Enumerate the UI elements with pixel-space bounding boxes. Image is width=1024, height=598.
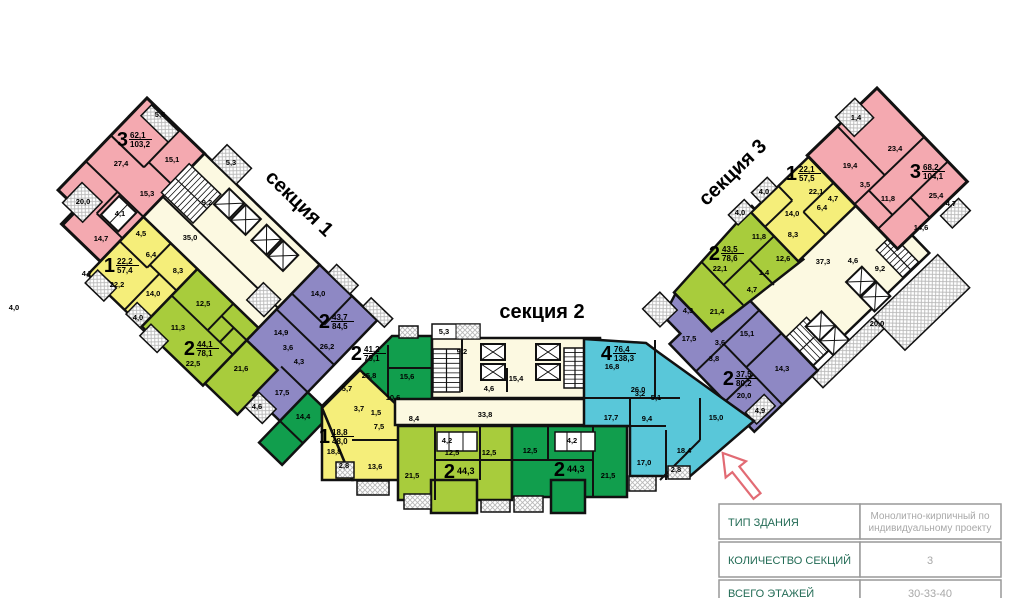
svg-text:10,6: 10,6 bbox=[386, 393, 401, 402]
svg-text:14,9: 14,9 bbox=[274, 328, 289, 337]
svg-text:1: 1 bbox=[786, 163, 797, 185]
svg-text:44,3: 44,3 bbox=[457, 466, 475, 476]
svg-text:4,0: 4,0 bbox=[759, 187, 769, 196]
svg-text:1: 1 bbox=[319, 426, 330, 448]
svg-text:3,8: 3,8 bbox=[709, 354, 719, 363]
svg-text:20,0: 20,0 bbox=[870, 319, 885, 328]
svg-text:22,5: 22,5 bbox=[186, 359, 201, 368]
svg-text:3,6: 3,6 bbox=[283, 343, 293, 352]
svg-text:76,4: 76,4 bbox=[614, 345, 630, 354]
svg-text:9,2: 9,2 bbox=[875, 264, 885, 273]
svg-text:4,7: 4,7 bbox=[946, 199, 956, 208]
svg-text:48,0: 48,0 bbox=[332, 437, 348, 446]
svg-text:3,2: 3,2 bbox=[635, 389, 645, 398]
svg-text:5,7: 5,7 bbox=[342, 384, 352, 393]
svg-text:2: 2 bbox=[444, 461, 455, 483]
svg-text:Монолитно-кирпичный по: Монолитно-кирпичный по bbox=[870, 511, 990, 522]
svg-text:5,1: 5,1 bbox=[651, 393, 661, 402]
svg-text:84,5: 84,5 bbox=[332, 322, 348, 331]
svg-text:37,5: 37,5 bbox=[736, 370, 752, 379]
svg-text:14,0: 14,0 bbox=[146, 289, 161, 298]
svg-text:103,2: 103,2 bbox=[130, 140, 151, 149]
svg-text:4,1: 4,1 bbox=[115, 209, 125, 218]
svg-text:1: 1 bbox=[104, 255, 115, 277]
svg-text:20,0: 20,0 bbox=[76, 197, 91, 206]
svg-text:44,1: 44,1 bbox=[197, 340, 213, 349]
svg-text:33,8: 33,8 bbox=[478, 410, 493, 419]
svg-text:17,5: 17,5 bbox=[682, 334, 697, 343]
svg-text:9,2: 9,2 bbox=[457, 347, 467, 356]
svg-text:15,4: 15,4 bbox=[509, 374, 524, 383]
svg-text:20,0: 20,0 bbox=[737, 391, 752, 400]
svg-text:1,5: 1,5 bbox=[371, 408, 381, 417]
svg-text:3,6: 3,6 bbox=[715, 338, 725, 347]
svg-text:15,1: 15,1 bbox=[165, 155, 180, 164]
svg-text:3,5: 3,5 bbox=[860, 180, 870, 189]
svg-text:7,5: 7,5 bbox=[374, 422, 384, 431]
svg-text:27,4: 27,4 bbox=[114, 159, 129, 168]
svg-text:37,3: 37,3 bbox=[816, 257, 831, 266]
svg-text:44,3: 44,3 bbox=[567, 464, 585, 474]
svg-text:22,1: 22,1 bbox=[809, 187, 824, 196]
svg-text:25,8: 25,8 bbox=[362, 371, 377, 380]
svg-text:104,1: 104,1 bbox=[923, 172, 944, 181]
svg-text:23,4: 23,4 bbox=[888, 144, 903, 153]
svg-text:18,8: 18,8 bbox=[332, 428, 348, 437]
svg-text:14,6: 14,6 bbox=[914, 223, 929, 232]
svg-text:21,4: 21,4 bbox=[710, 307, 725, 316]
svg-text:5,3: 5,3 bbox=[226, 158, 236, 167]
svg-text:2: 2 bbox=[709, 243, 720, 265]
svg-text:9,2: 9,2 bbox=[202, 198, 212, 207]
svg-text:22,1: 22,1 bbox=[713, 264, 728, 273]
svg-text:индивидуальному проекту: индивидуальному проекту bbox=[869, 523, 992, 534]
svg-text:22,2: 22,2 bbox=[110, 280, 125, 289]
svg-text:4,6: 4,6 bbox=[252, 402, 262, 411]
svg-text:4,3: 4,3 bbox=[294, 357, 304, 366]
svg-text:6,4: 6,4 bbox=[817, 203, 828, 212]
svg-text:68,2: 68,2 bbox=[923, 163, 939, 172]
svg-text:ТИП ЗДАНИЯ: ТИП ЗДАНИЯ bbox=[728, 517, 799, 529]
svg-text:1,4: 1,4 bbox=[759, 268, 770, 277]
svg-text:3: 3 bbox=[927, 555, 933, 567]
svg-text:4,0: 4,0 bbox=[9, 303, 19, 312]
svg-text:4,9: 4,9 bbox=[755, 406, 765, 415]
svg-text:14,7: 14,7 bbox=[94, 234, 109, 243]
svg-text:21,6: 21,6 bbox=[234, 364, 249, 373]
svg-text:секция 2: секция 2 bbox=[499, 301, 584, 323]
svg-text:17,5: 17,5 bbox=[275, 388, 290, 397]
svg-text:14,0: 14,0 bbox=[785, 209, 800, 218]
svg-text:41,2: 41,2 bbox=[364, 345, 380, 354]
svg-text:15,3: 15,3 bbox=[140, 189, 155, 198]
svg-text:18,8: 18,8 bbox=[327, 447, 342, 456]
svg-text:3: 3 bbox=[117, 129, 128, 151]
svg-text:3,7: 3,7 bbox=[354, 404, 364, 413]
svg-text:57,4: 57,4 bbox=[117, 266, 133, 275]
svg-text:2: 2 bbox=[319, 311, 330, 333]
svg-text:4,2: 4,2 bbox=[567, 436, 577, 445]
svg-text:12,5: 12,5 bbox=[482, 448, 497, 457]
svg-text:30-33-40: 30-33-40 bbox=[908, 588, 952, 598]
svg-text:19,4: 19,4 bbox=[843, 161, 858, 170]
svg-text:11,8: 11,8 bbox=[881, 194, 895, 203]
svg-text:4,7: 4,7 bbox=[747, 285, 757, 294]
svg-text:4,0: 4,0 bbox=[133, 313, 143, 322]
svg-text:8,3: 8,3 bbox=[788, 230, 798, 239]
svg-text:4,5: 4,5 bbox=[136, 229, 146, 238]
svg-text:22,2: 22,2 bbox=[117, 257, 133, 266]
svg-text:КОЛИЧЕСТВО СЕКЦИЙ: КОЛИЧЕСТВО СЕКЦИЙ bbox=[728, 554, 851, 567]
svg-text:4,6: 4,6 bbox=[848, 256, 858, 265]
svg-text:2: 2 bbox=[723, 368, 734, 390]
svg-text:22,1: 22,1 bbox=[799, 165, 815, 174]
svg-text:15,0: 15,0 bbox=[709, 413, 724, 422]
svg-text:2,8: 2,8 bbox=[671, 465, 681, 474]
svg-text:4,7: 4,7 bbox=[82, 269, 92, 278]
svg-text:15,6: 15,6 bbox=[400, 372, 415, 381]
svg-text:16,8: 16,8 bbox=[605, 362, 620, 371]
svg-text:80,2: 80,2 bbox=[736, 379, 752, 388]
svg-text:2: 2 bbox=[351, 343, 362, 365]
svg-text:4,7: 4,7 bbox=[828, 194, 838, 203]
svg-text:12,5: 12,5 bbox=[196, 299, 211, 308]
svg-text:17,0: 17,0 bbox=[637, 458, 652, 467]
svg-text:8,3: 8,3 bbox=[173, 266, 183, 275]
svg-text:ВСЕГО ЭТАЖЕЙ: ВСЕГО ЭТАЖЕЙ bbox=[728, 587, 814, 598]
svg-text:26,2: 26,2 bbox=[320, 342, 335, 351]
svg-text:78,6: 78,6 bbox=[722, 254, 738, 263]
svg-text:11,8: 11,8 bbox=[752, 232, 766, 241]
svg-text:14,4: 14,4 bbox=[296, 412, 311, 421]
svg-text:4,2: 4,2 bbox=[442, 436, 452, 445]
svg-text:9,4: 9,4 bbox=[642, 414, 653, 423]
svg-text:14,3: 14,3 bbox=[775, 364, 790, 373]
svg-text:11,3: 11,3 bbox=[171, 323, 185, 332]
svg-text:12,5: 12,5 bbox=[523, 446, 538, 455]
svg-text:78,1: 78,1 bbox=[197, 349, 213, 358]
svg-text:2: 2 bbox=[184, 338, 195, 360]
svg-text:57,5: 57,5 bbox=[799, 174, 815, 183]
svg-text:12,6: 12,6 bbox=[776, 254, 791, 263]
svg-text:15,1: 15,1 bbox=[740, 329, 755, 338]
svg-text:2,8: 2,8 bbox=[339, 461, 349, 470]
svg-text:79,1: 79,1 bbox=[364, 354, 380, 363]
svg-text:6,4: 6,4 bbox=[146, 250, 157, 259]
svg-text:43,5: 43,5 bbox=[722, 245, 738, 254]
svg-text:17,7: 17,7 bbox=[604, 413, 619, 422]
svg-text:2: 2 bbox=[554, 459, 565, 481]
svg-text:3: 3 bbox=[910, 161, 921, 183]
svg-text:21,5: 21,5 bbox=[405, 471, 420, 480]
svg-text:35,0: 35,0 bbox=[183, 233, 198, 242]
svg-text:13,6: 13,6 bbox=[368, 462, 383, 471]
svg-text:5,3: 5,3 bbox=[439, 327, 449, 336]
svg-text:5,5: 5,5 bbox=[155, 110, 165, 119]
svg-text:4,3: 4,3 bbox=[683, 306, 693, 315]
svg-text:8,4: 8,4 bbox=[409, 414, 420, 423]
svg-text:14,0: 14,0 bbox=[311, 289, 326, 298]
svg-text:18,4: 18,4 bbox=[677, 446, 692, 455]
svg-text:4,0: 4,0 bbox=[735, 208, 745, 217]
svg-text:62,1: 62,1 bbox=[130, 131, 146, 140]
svg-text:21,5: 21,5 bbox=[601, 471, 616, 480]
svg-text:43,7: 43,7 bbox=[332, 313, 348, 322]
svg-text:1,4: 1,4 bbox=[851, 113, 862, 122]
svg-text:12,5: 12,5 bbox=[445, 448, 460, 457]
svg-text:25,4: 25,4 bbox=[929, 191, 944, 200]
svg-text:4,6: 4,6 bbox=[484, 384, 494, 393]
